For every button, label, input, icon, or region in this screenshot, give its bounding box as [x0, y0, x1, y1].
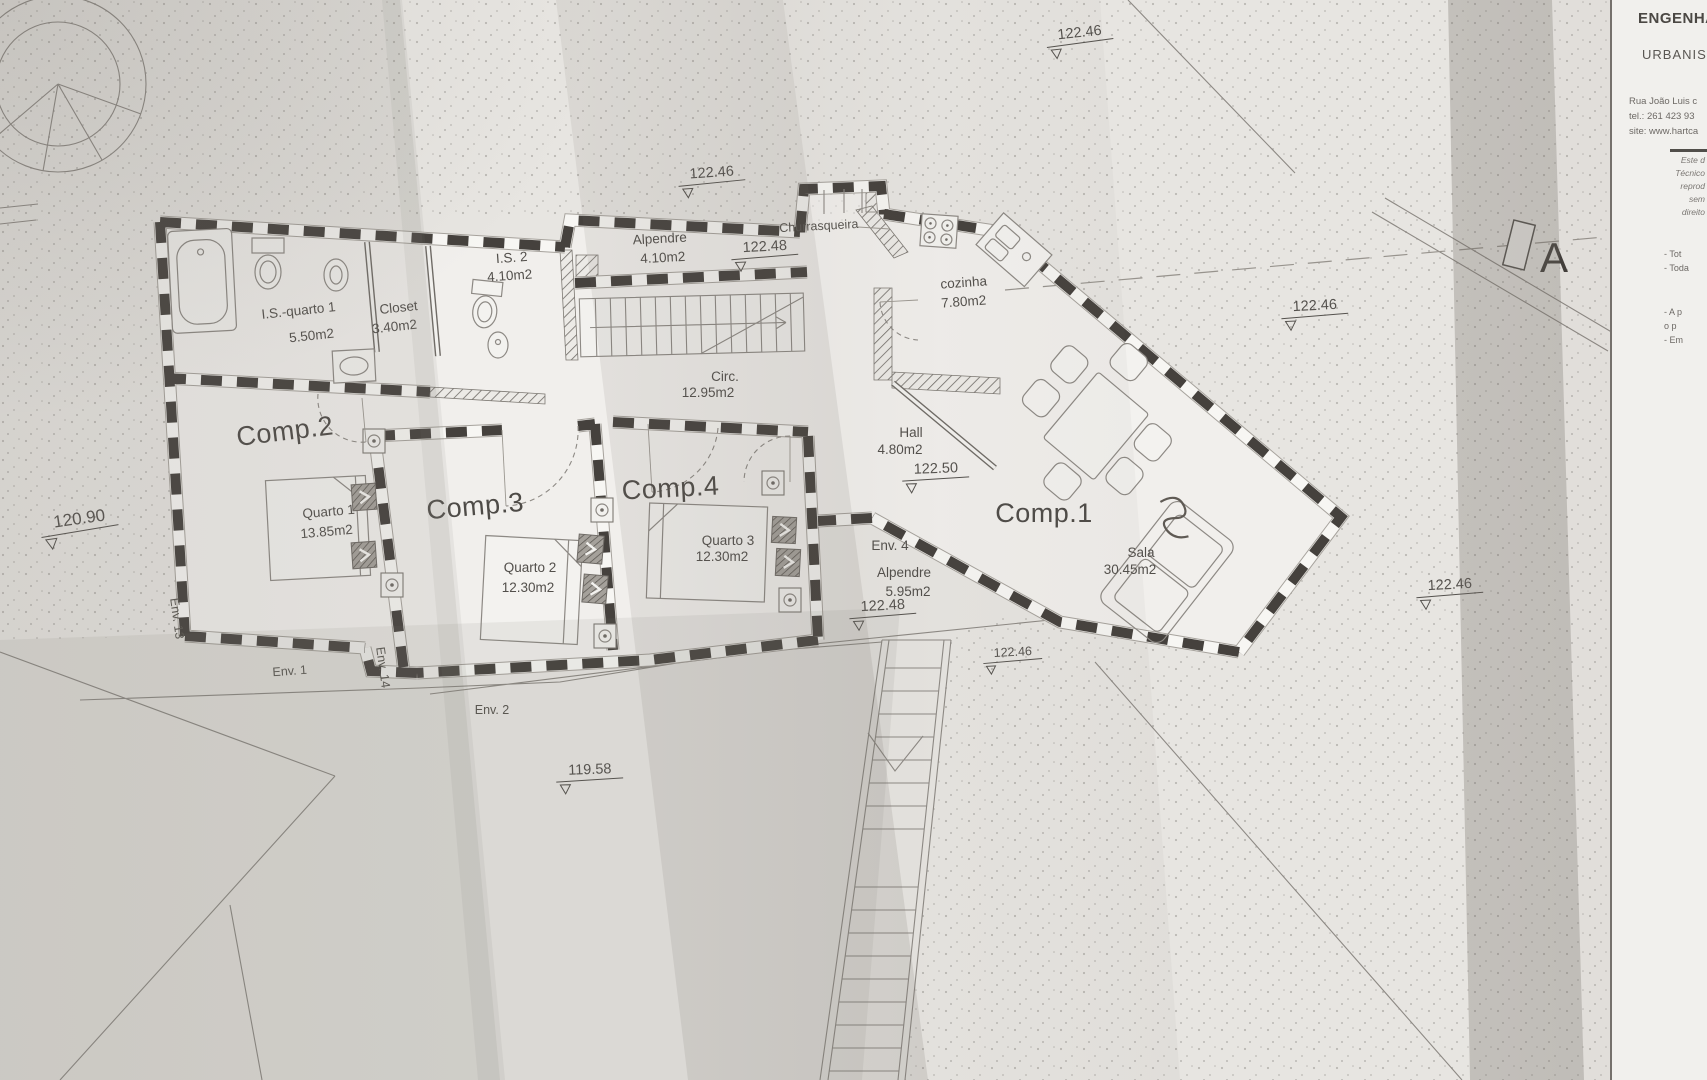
title-block-tel: tel.: 261 423 93: [1629, 111, 1707, 122]
label-quarto2-area: 12.30m2: [502, 580, 555, 595]
section-marker-label: A: [1540, 234, 1568, 281]
title-block-bullet: - Toda: [1664, 263, 1707, 273]
washbasin: [332, 349, 376, 383]
label-comp1: Comp.1: [995, 498, 1093, 528]
stove-icon: [920, 214, 958, 248]
title-block-note: Este d: [1612, 155, 1705, 165]
label-quarto3: Quarto 3: [702, 533, 755, 548]
label-sala: Sala: [1127, 545, 1155, 560]
label-is2-area: 4.10m2: [487, 266, 533, 284]
label-quarto3-area: 12.30m2: [696, 549, 749, 564]
label-alpendre-top-area: 4.10m2: [640, 249, 686, 266]
label-env4: Env. 4: [871, 538, 909, 553]
title-block-note: reprod: [1612, 181, 1705, 191]
title-block-rule: [1670, 149, 1707, 152]
title-block-note: direito: [1612, 207, 1705, 217]
label-cozinha-area: 7.80m2: [941, 292, 987, 310]
label-hall-area: 4.80m2: [877, 442, 922, 457]
label-alpendre-top: Alpendre: [632, 230, 687, 248]
title-block-note: Técnico: [1612, 168, 1705, 178]
label-circ: Circ.: [711, 369, 739, 384]
elevation-hall: 122.50: [913, 460, 958, 478]
title-block-bullet: - A p: [1664, 307, 1707, 317]
title-block-company: ENGENHA: [1638, 10, 1707, 27]
elevation-bottom-right: 122.46: [1427, 576, 1472, 594]
elevation-terrace: 122.46: [993, 644, 1032, 660]
label-env4-alpendre: Alpendre: [877, 565, 931, 580]
elevation-alpendre: 122.48: [742, 238, 787, 256]
title-block-note: sem: [1612, 194, 1705, 204]
label-env2: Env. 2: [475, 703, 510, 717]
title-block-address: Rua João Luis c: [1629, 96, 1707, 107]
title-block-bullet: - Tot: [1664, 249, 1707, 259]
label-circ-area: 12.95m2: [682, 385, 735, 400]
floor-plan-drawing: 122.46 122.46 122.48 122.46 122.50 122.4…: [0, 0, 1707, 1080]
bidet-icon: [324, 259, 348, 291]
label-env1: Env. 1: [272, 663, 307, 679]
title-block-bullet: - Em: [1664, 335, 1707, 345]
title-block: ENGENHA URBANIS Rua João Luis c tel.: 26…: [1610, 0, 1707, 1080]
title-block-subtitle: URBANIS: [1642, 47, 1707, 62]
label-quarto2: Quarto 2: [504, 560, 557, 575]
bidet2-icon: [488, 332, 508, 358]
title-block-site: site: www.hartca: [1629, 126, 1707, 137]
title-block-bullet: o p: [1664, 321, 1707, 331]
interior-stairs: [579, 293, 804, 357]
elevation-mid-right: 122.46: [1292, 297, 1337, 315]
label-hall: Hall: [899, 425, 922, 440]
elevation-south: 119.58: [568, 761, 612, 779]
floor-plan-photo: 122.46 122.46 122.48 122.46 122.50 122.4…: [0, 0, 1707, 1080]
label-is2: I.S. 2: [495, 249, 527, 266]
bathtub: [167, 228, 236, 333]
label-sala-area: 30.45m2: [1104, 562, 1157, 577]
toilet-icon: [252, 238, 284, 289]
label-comp4: Comp.4: [621, 470, 720, 505]
elevation-env4: 122.48: [860, 597, 905, 615]
elevation-top-center: 122.46: [689, 163, 734, 182]
label-env4-area: 5.95m2: [885, 584, 930, 599]
